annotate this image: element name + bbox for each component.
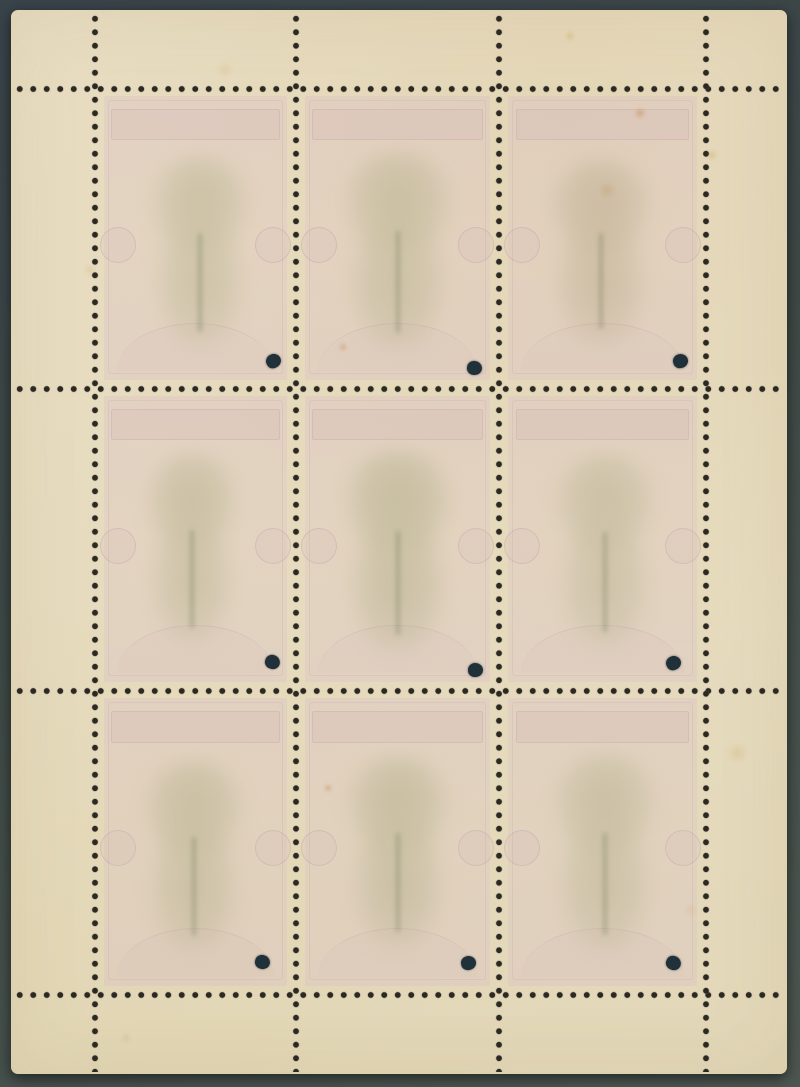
stamp-value-medallion-right: [458, 830, 494, 866]
stamp-inscription-band-ornament: [516, 409, 690, 440]
tree-trunk-showthrough: [396, 833, 400, 932]
perforation-row: [13, 991, 785, 999]
stamp-value-medallion-left: [301, 528, 337, 564]
stamp-value-medallion-right: [255, 227, 291, 263]
perforation-column: [495, 12, 503, 1072]
stamp-value-medallion-left: [504, 227, 540, 263]
stamp: [296, 691, 499, 995]
stamp-value-medallion-left: [100, 528, 136, 564]
perforation-column: [702, 12, 710, 1072]
foxing-spot: [121, 1033, 131, 1043]
stamp: [499, 389, 706, 691]
stamp-sheet: [11, 10, 787, 1074]
foxing-spot: [599, 182, 615, 198]
stamp-value-medallion-right: [255, 528, 291, 564]
perforation-column: [292, 12, 300, 1072]
stamp-inscription-band-ornament: [312, 109, 482, 140]
stamp-value-medallion-right: [665, 830, 701, 866]
punch-hole: [467, 662, 482, 677]
stamp-inscription-band-ornament: [111, 109, 279, 140]
stamp: [499, 89, 706, 389]
stamp-inscription-band-ornament: [111, 409, 279, 440]
tree-trunk-showthrough: [192, 837, 196, 936]
tree-trunk-showthrough: [603, 833, 607, 935]
stamp: [95, 691, 296, 995]
stamp-value-medallion-right: [458, 227, 494, 263]
stamp-value-medallion-left: [504, 528, 540, 564]
stamp: [499, 691, 706, 995]
foxing-spot: [216, 61, 234, 79]
foxing-spot: [706, 149, 718, 161]
foxing-spot: [84, 264, 96, 276]
perforation-row: [13, 385, 785, 393]
tree-trunk-showthrough: [190, 530, 194, 628]
perforation-row: [13, 687, 785, 695]
stamp-inscription-band-ornament: [312, 711, 482, 743]
foxing-spot: [565, 31, 575, 41]
foxing-spot: [684, 903, 698, 917]
stamp: [296, 89, 499, 389]
stamp-inscription-band-ornament: [312, 409, 482, 440]
foxing-spot: [726, 742, 748, 764]
stamp-value-medallion-left: [100, 227, 136, 263]
foxing-spot: [339, 343, 347, 351]
stamp: [95, 389, 296, 691]
stamp: [296, 389, 499, 691]
perforation-column: [91, 12, 99, 1072]
photo-background: [0, 0, 800, 1087]
tree-trunk-showthrough: [396, 231, 400, 333]
stamp-value-medallion-right: [255, 830, 291, 866]
stamp-inscription-band-ornament: [111, 711, 279, 743]
stamp: [95, 89, 296, 389]
tree-trunk-showthrough: [198, 233, 202, 332]
stamp-value-medallion-right: [458, 528, 494, 564]
stamp-value-medallion-right: [665, 227, 701, 263]
stamp-value-medallion-right: [665, 528, 701, 564]
stamp-inscription-band-ornament: [516, 711, 690, 743]
stamp-inscription-band-ornament: [516, 109, 690, 140]
tree-trunk-showthrough: [396, 531, 400, 635]
foxing-spot: [324, 784, 332, 792]
foxing-spot: [634, 107, 646, 119]
perforation-row: [13, 85, 785, 93]
stamp-value-medallion-left: [301, 227, 337, 263]
tree-trunk-showthrough: [599, 233, 603, 329]
tree-trunk-showthrough: [603, 532, 607, 632]
